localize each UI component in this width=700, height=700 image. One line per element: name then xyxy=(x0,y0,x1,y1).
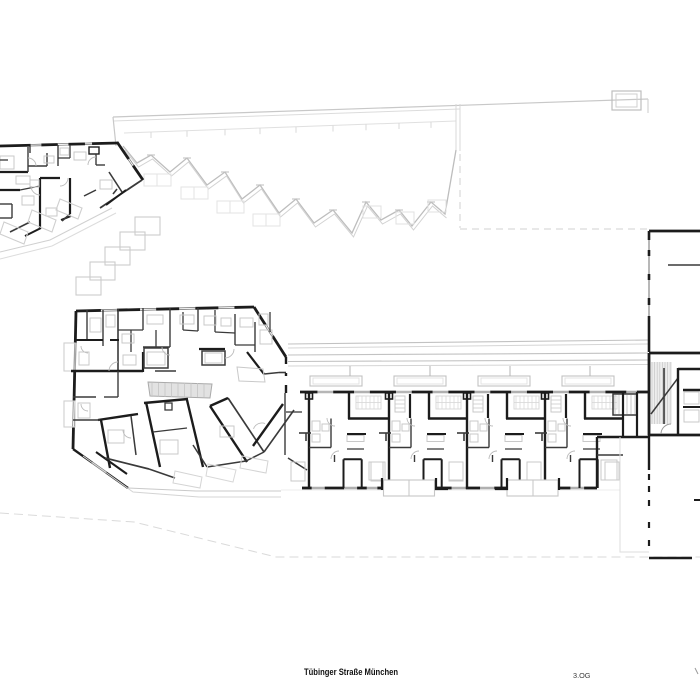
svg-text:3.OG: 3.OG xyxy=(573,671,591,680)
svg-text:Tübinger Straße München: Tübinger Straße München xyxy=(304,667,398,677)
